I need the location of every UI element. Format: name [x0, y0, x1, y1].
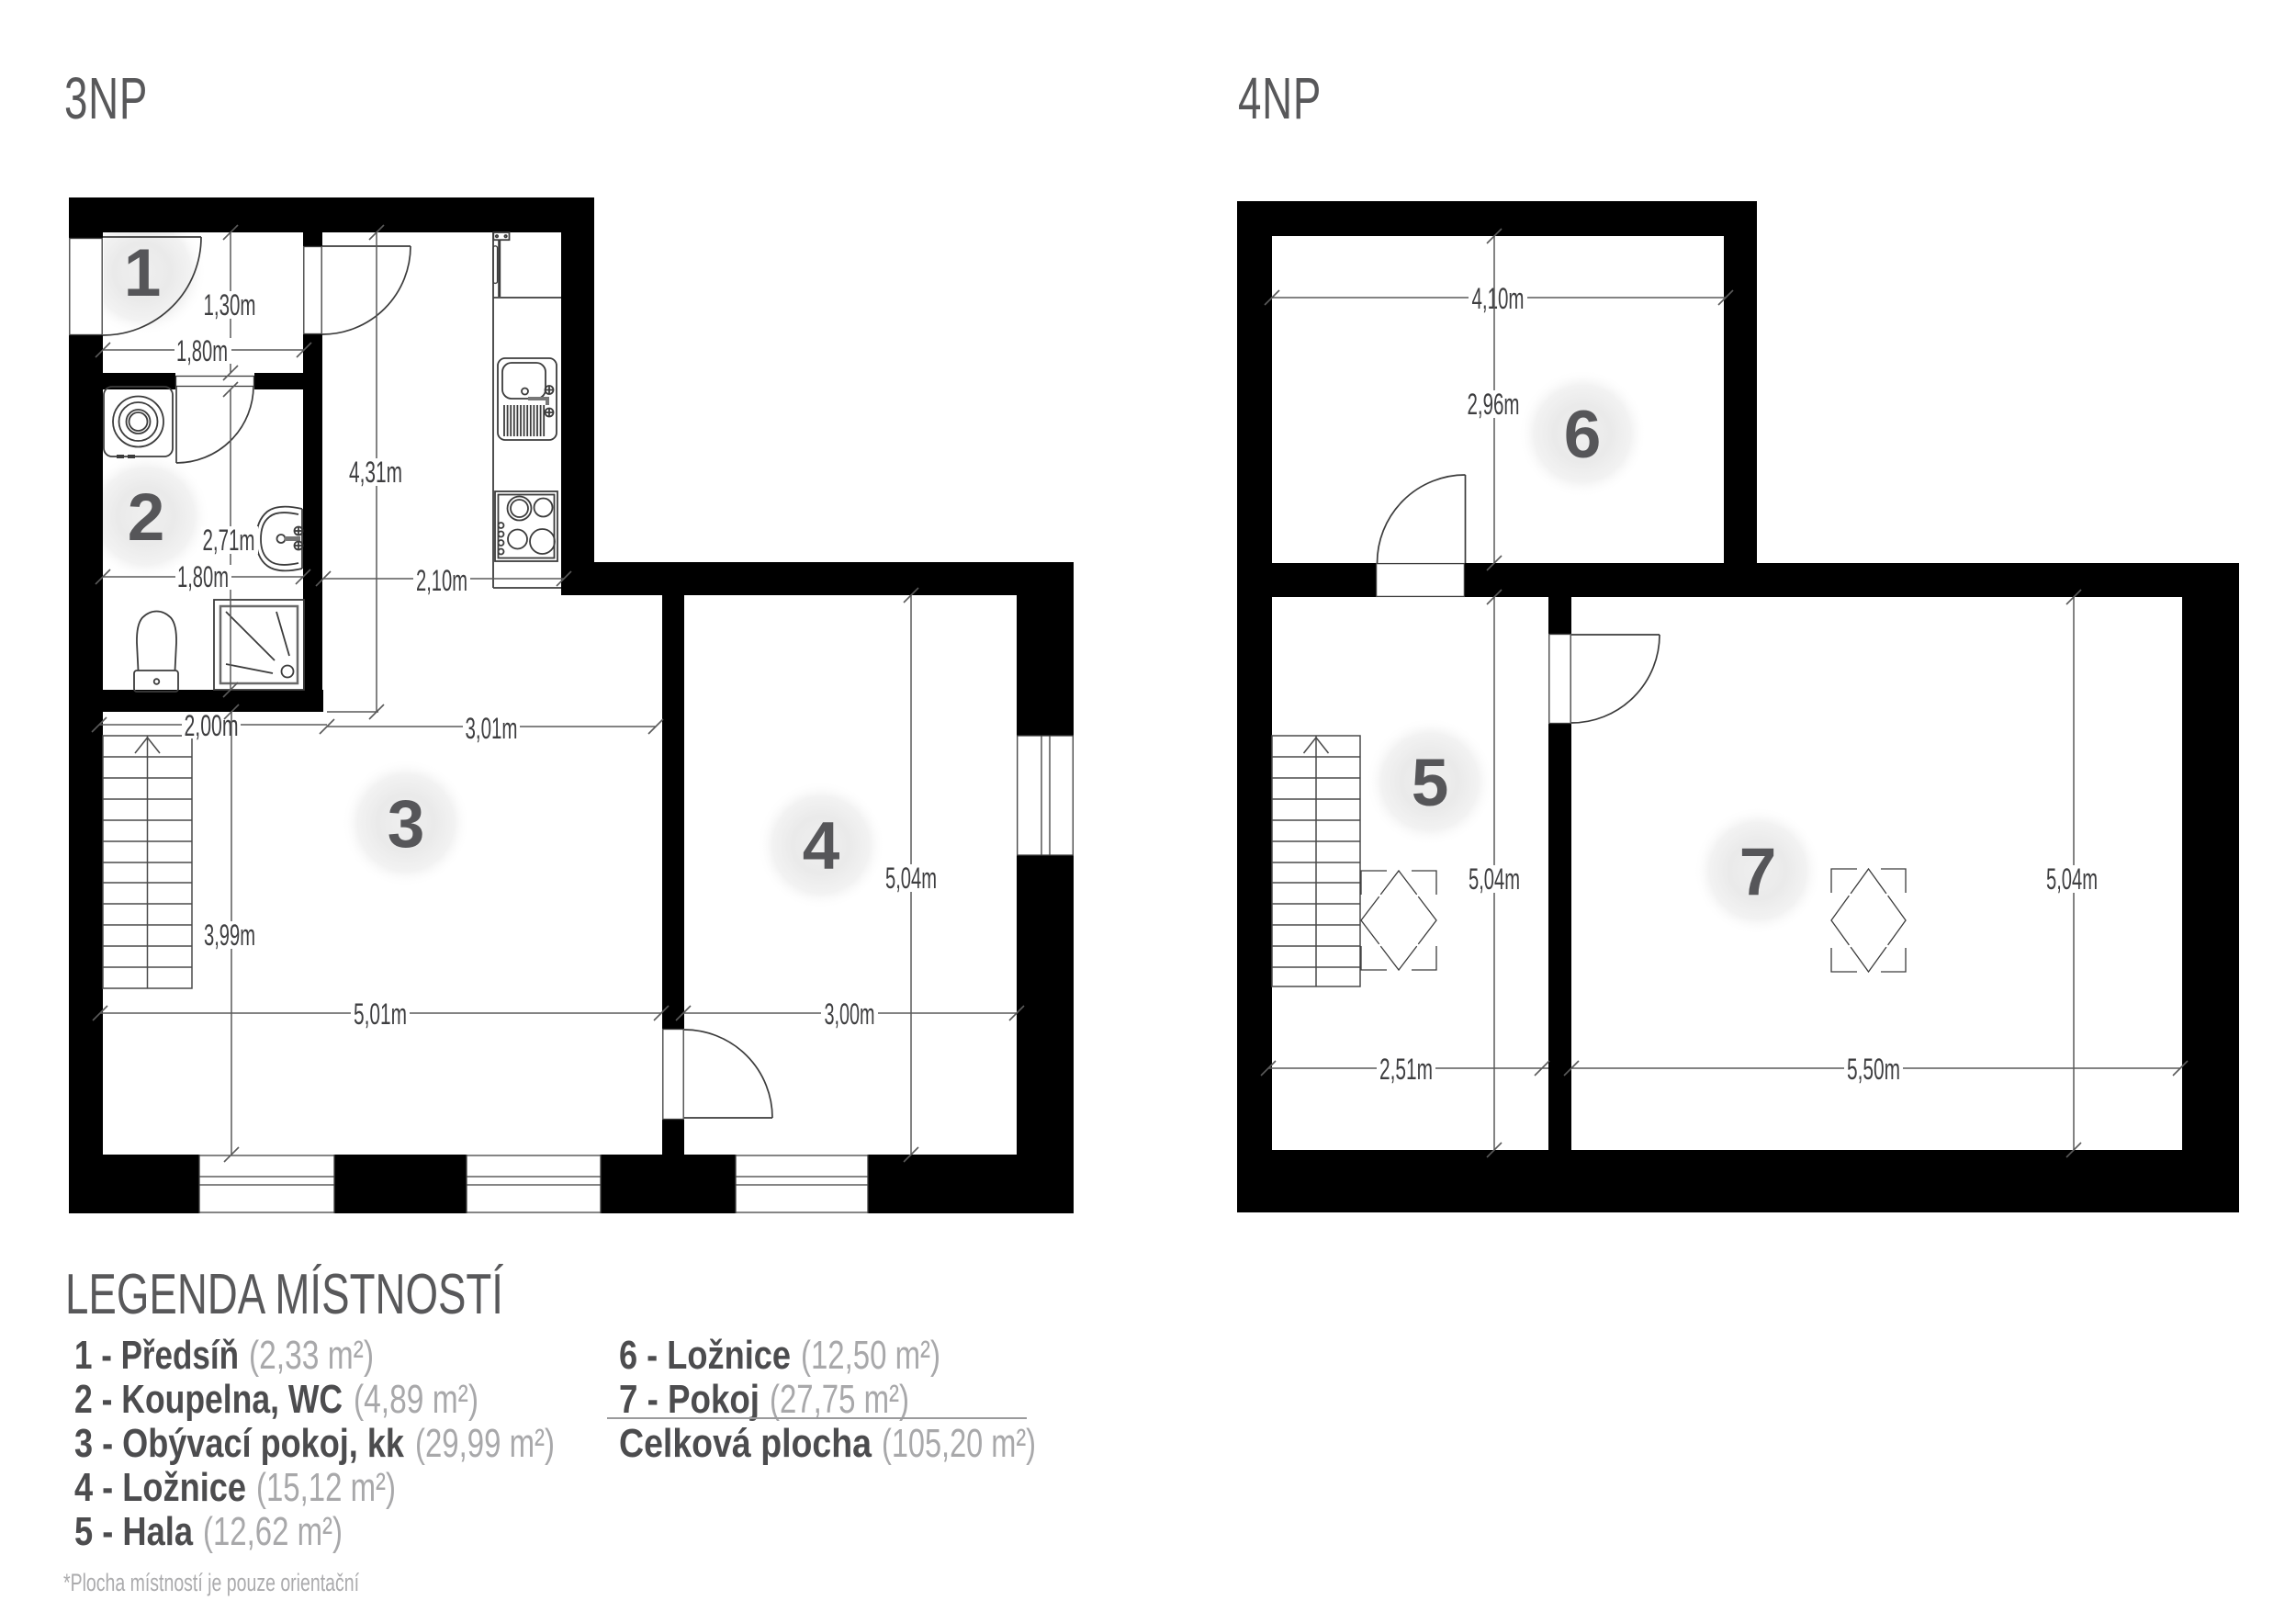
svg-text:(2,33 m²): (2,33 m²)	[249, 1333, 374, 1378]
svg-text:3,99m: 3,99m	[204, 919, 255, 952]
svg-text:6: 6	[1564, 398, 1602, 472]
svg-text:2,71m: 2,71m	[203, 524, 255, 557]
svg-text:4,31m: 4,31m	[349, 456, 402, 489]
svg-text:2,96m: 2,96m	[1468, 388, 1520, 421]
svg-text:1,80m: 1,80m	[177, 560, 229, 593]
svg-text:1,80m: 1,80m	[176, 334, 228, 367]
svg-text:5,01m: 5,01m	[354, 997, 407, 1031]
svg-text:(12,50 m²): (12,50 m²)	[801, 1333, 940, 1378]
svg-text:4 - Ložnice: 4 - Ložnice	[74, 1465, 246, 1510]
svg-text:*Plocha místností je pouze ori: *Plocha místností je pouze orientační	[63, 1569, 359, 1596]
svg-text:4: 4	[803, 809, 840, 884]
svg-text:3NP: 3NP	[64, 65, 148, 131]
svg-text:(105,20 m²): (105,20 m²)	[882, 1421, 1036, 1466]
svg-text:1: 1	[124, 236, 162, 310]
svg-text:(27,75 m²): (27,75 m²)	[770, 1377, 909, 1422]
svg-text:LEGENDA MÍSTNOSTÍ: LEGENDA MÍSTNOSTÍ	[65, 1263, 504, 1326]
svg-text:5: 5	[1412, 746, 1449, 820]
svg-text:Celková plocha: Celková plocha	[619, 1421, 872, 1466]
svg-text:5,04m: 5,04m	[1469, 862, 1520, 896]
svg-text:2 - Koupelna, WC: 2 - Koupelna, WC	[74, 1377, 343, 1422]
svg-text:4,10m: 4,10m	[1472, 282, 1525, 315]
svg-text:5,50m: 5,50m	[1847, 1053, 1900, 1086]
svg-text:3,00m: 3,00m	[825, 997, 875, 1031]
svg-text:1 - Předsíň: 1 - Předsíň	[74, 1333, 239, 1378]
svg-text:3,01m: 3,01m	[466, 712, 518, 745]
svg-text:2,10m: 2,10m	[416, 564, 467, 597]
svg-text:4NP: 4NP	[1238, 65, 1322, 131]
svg-text:(15,12 m²): (15,12 m²)	[256, 1465, 396, 1510]
svg-text:(12,62 m²): (12,62 m²)	[203, 1509, 343, 1554]
svg-text:2: 2	[128, 480, 165, 555]
svg-text:3 - Obývací pokoj, kk: 3 - Obývací pokoj, kk	[74, 1421, 404, 1466]
svg-text:3: 3	[388, 787, 425, 862]
svg-text:(29,99 m²): (29,99 m²)	[415, 1421, 555, 1466]
svg-text:2,51m: 2,51m	[1379, 1053, 1433, 1086]
svg-text:7 - Pokoj: 7 - Pokoj	[619, 1377, 760, 1422]
svg-text:5,04m: 5,04m	[885, 862, 937, 895]
svg-text:(4,89 m²): (4,89 m²)	[354, 1377, 478, 1422]
svg-text:5 - Hala: 5 - Hala	[74, 1509, 193, 1554]
svg-text:6 - Ložnice: 6 - Ložnice	[619, 1333, 791, 1378]
svg-text:7: 7	[1739, 835, 1777, 909]
svg-text:1,30m: 1,30m	[204, 288, 256, 321]
svg-text:5,04m: 5,04m	[2046, 862, 2098, 896]
